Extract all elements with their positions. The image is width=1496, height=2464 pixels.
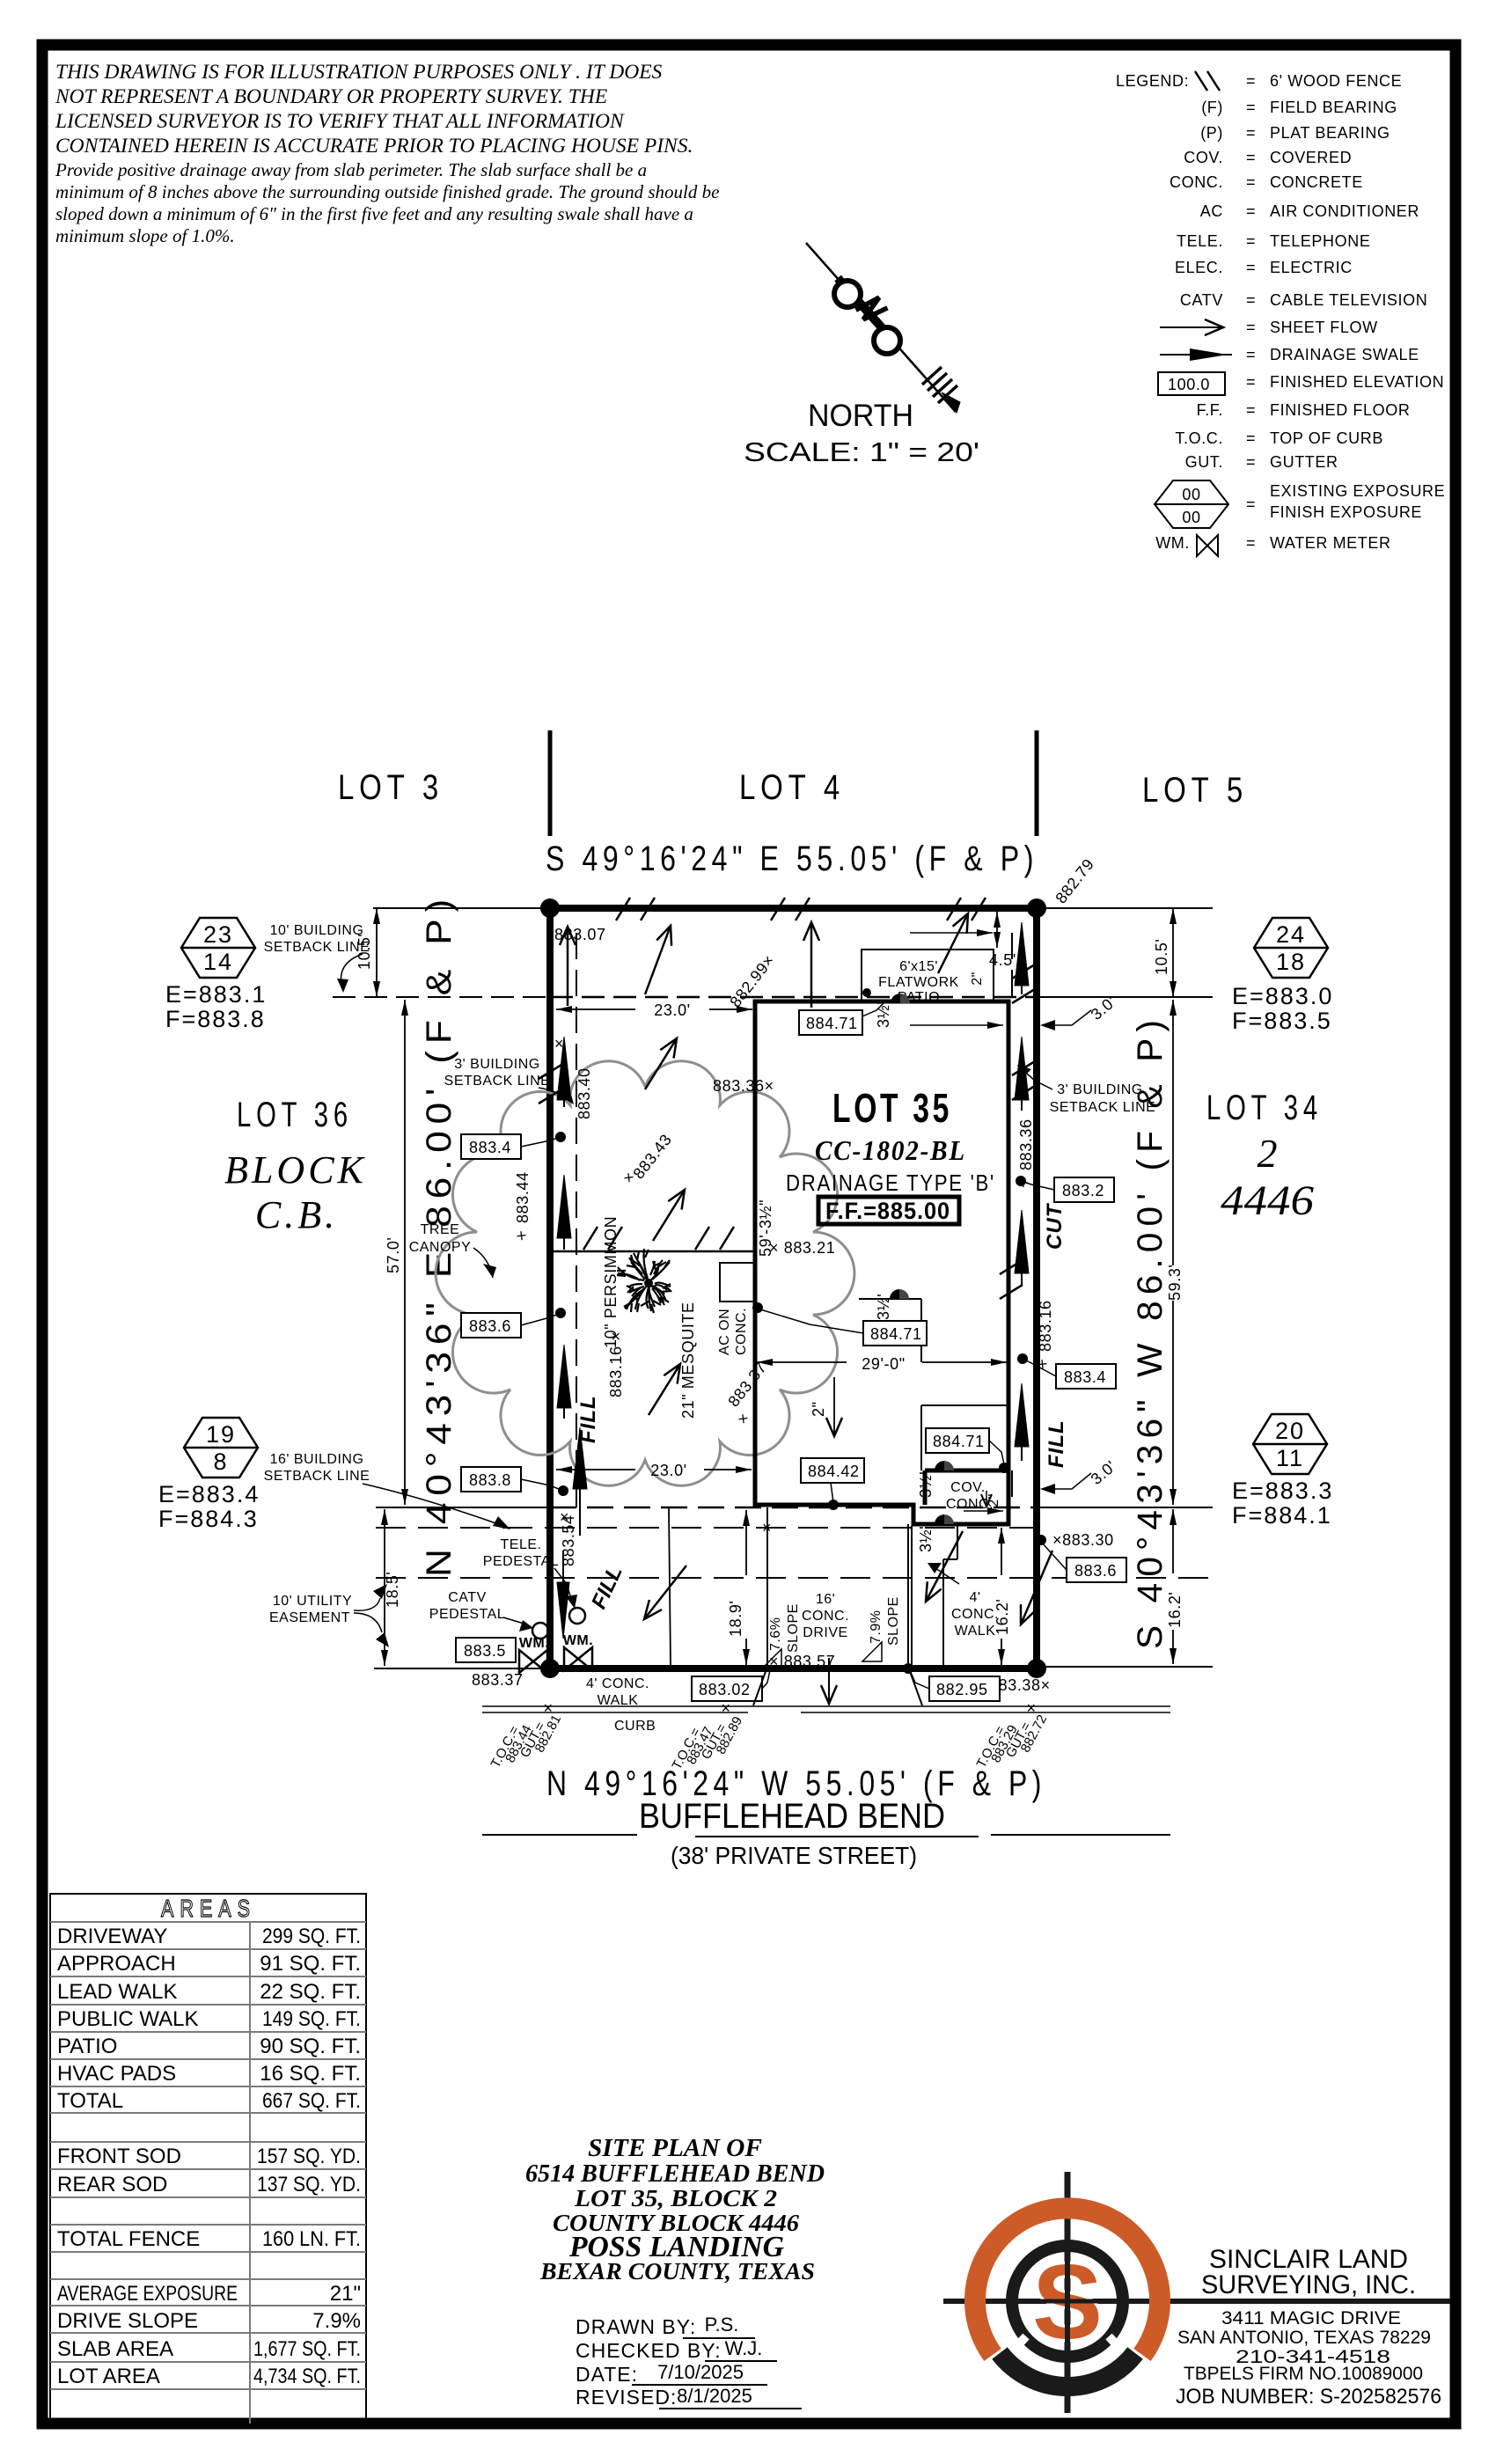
svg-text:E=883.3: E=883.3 — [1232, 1478, 1333, 1504]
svg-text:6514 BUFFLEHEAD BEND: 6514 BUFFLEHEAD BEND — [525, 2160, 825, 2188]
svg-text:CONC.: CONC. — [734, 1308, 749, 1355]
svg-text:COV.: COV. — [1184, 149, 1223, 166]
svg-text:LEAD WALK: LEAD WALK — [57, 1980, 178, 2004]
svg-text:F.F.=885.00: F.F.=885.00 — [825, 1198, 950, 1224]
svg-text:(F): (F) — [1201, 99, 1223, 116]
svg-text:6' WOOD FENCE: 6' WOOD FENCE — [1270, 72, 1402, 90]
svg-text:=: = — [1246, 346, 1256, 363]
svg-text:JOB NUMBER: S-202582576: JOB NUMBER: S-202582576 — [1176, 2385, 1441, 2409]
svg-text:CONC.: CONC. — [1170, 173, 1223, 191]
svg-text:11: 11 — [1276, 1445, 1304, 1471]
svg-text:23.0': 23.0' — [654, 1001, 690, 1019]
svg-text:CONTAINED HEREIN IS ACCURATE P: CONTAINED HEREIN IS ACCURATE PRIOR TO PL… — [55, 135, 693, 158]
svg-text:SLOPE: SLOPE — [886, 1596, 901, 1646]
svg-text:× 883.57: × 883.57 — [769, 1653, 835, 1670]
svg-text:TOTAL: TOTAL — [57, 2089, 123, 2113]
svg-text:10' UTILITY: 10' UTILITY — [273, 1594, 352, 1609]
svg-text:PATIO: PATIO — [57, 2035, 117, 2058]
svg-text:883.2: 883.2 — [1062, 1182, 1104, 1199]
svg-text:ELEC.: ELEC. — [1175, 259, 1223, 276]
svg-text:minimum of 8 inches above the: minimum of 8 inches above the surroundin… — [55, 181, 719, 202]
svg-text:18.9': 18.9' — [727, 1601, 744, 1637]
svg-text:WM.: WM. — [1155, 534, 1190, 552]
svg-text:3' BUILDING: 3' BUILDING — [1057, 1082, 1142, 1097]
svg-text:CATV: CATV — [448, 1590, 486, 1605]
svg-text:883.8: 883.8 — [469, 1471, 511, 1489]
svg-text:8: 8 — [213, 1448, 228, 1475]
svg-text:299 SQ. FT.: 299 SQ. FT. — [262, 1925, 361, 1948]
svg-text:×: × — [560, 1508, 569, 1526]
svg-text:16' BUILDING: 16' BUILDING — [270, 1452, 364, 1467]
svg-text:00: 00 — [1182, 486, 1200, 503]
svg-text:BEXAR COUNTY, TEXAS: BEXAR COUNTY, TEXAS — [539, 2258, 815, 2284]
svg-text:(P): (P) — [1200, 124, 1223, 142]
svg-text:883.02: 883.02 — [699, 1681, 751, 1698]
svg-text:DATE:: DATE: — [576, 2363, 638, 2386]
svg-text:20: 20 — [1275, 1418, 1305, 1444]
svg-text:6'x15': 6'x15' — [899, 959, 938, 974]
svg-text:SETBACK LINE: SETBACK LINE — [264, 940, 370, 955]
svg-text:TOTAL FENCE: TOTAL FENCE — [57, 2227, 200, 2251]
svg-text:TREE: TREE — [421, 1222, 460, 1237]
svg-text:2": 2" — [810, 1401, 827, 1417]
svg-text:884.71: 884.71 — [806, 1015, 858, 1032]
svg-text:=: = — [1246, 319, 1256, 336]
svg-text:4' CONC.: 4' CONC. — [586, 1676, 649, 1691]
svg-text:3½': 3½' — [875, 1001, 892, 1028]
svg-text:LOT 3: LOT 3 — [338, 768, 444, 807]
svg-text:=: = — [1246, 232, 1256, 250]
svg-text:883.6: 883.6 — [1074, 1562, 1117, 1580]
svg-text:10' BUILDING: 10' BUILDING — [270, 923, 364, 938]
svg-text:883.37: 883.37 — [472, 1671, 524, 1689]
svg-text:SETBACK LINE: SETBACK LINE — [264, 1469, 370, 1484]
svg-text:LOT 35, BLOCK 2: LOT 35, BLOCK 2 — [574, 2185, 777, 2211]
svg-text:137 SQ. YD.: 137 SQ. YD. — [257, 2173, 361, 2196]
svg-text:18.5': 18.5' — [384, 1572, 401, 1608]
svg-text:SLOPE: SLOPE — [786, 1603, 801, 1653]
svg-text:23: 23 — [203, 921, 233, 948]
svg-text:SETBACK LINE: SETBACK LINE — [444, 1074, 551, 1089]
svg-text:883.07: 883.07 — [554, 926, 606, 943]
svg-text:1,677 SQ. FT.: 1,677 SQ. FT. — [253, 2337, 361, 2361]
svg-text:CANOPY: CANOPY — [409, 1240, 472, 1255]
svg-text:APPROACH: APPROACH — [57, 1952, 176, 1976]
svg-text:7/10/2025: 7/10/2025 — [657, 2361, 744, 2383]
svg-text:3½': 3½' — [917, 1526, 935, 1552]
svg-text:2": 2" — [986, 1493, 1001, 1507]
svg-text:14: 14 — [203, 949, 233, 975]
svg-text:DRAINAGE TYPE 'B': DRAINAGE TYPE 'B' — [786, 1170, 995, 1196]
svg-text:=: = — [1246, 291, 1256, 309]
svg-text:LICENSED SURVEYOR IS TO VERIFY: LICENSED SURVEYOR IS TO VERIFY THAT ALL … — [55, 110, 625, 133]
svg-text:90 SQ. FT.: 90 SQ. FT. — [260, 2035, 361, 2058]
svg-text:3½': 3½' — [917, 1471, 935, 1498]
svg-text:16 SQ. FT.: 16 SQ. FT. — [260, 2062, 361, 2086]
svg-text:SCALE: 1" = 20': SCALE: 1" = 20' — [744, 436, 979, 467]
svg-text:19: 19 — [206, 1421, 236, 1448]
svg-text:21": 21" — [330, 2282, 361, 2306]
svg-text:LOT AREA: LOT AREA — [57, 2365, 160, 2388]
svg-text:SAN ANTONIO, TEXAS 78229: SAN ANTONIO, TEXAS 78229 — [1177, 2328, 1431, 2348]
svg-text:THIS DRAWING IS FOR ILLUSTRATI: THIS DRAWING IS FOR ILLUSTRATION PURPOSE… — [55, 61, 663, 84]
svg-text:TELE.: TELE. — [501, 1537, 542, 1552]
svg-text:SURVEYING, INC.: SURVEYING, INC. — [1201, 2270, 1416, 2299]
svg-text:FILL: FILL — [1045, 1419, 1068, 1468]
svg-text:21" MESQUITE: 21" MESQUITE — [679, 1302, 697, 1419]
svg-text:882.95: 882.95 — [936, 1681, 988, 1698]
svg-text:AIR CONDITIONER: AIR CONDITIONER — [1270, 202, 1419, 220]
svg-text:PLAT BEARING: PLAT BEARING — [1270, 124, 1390, 142]
svg-text:WM.: WM. — [519, 1636, 549, 1651]
svg-text:SLAB AREA: SLAB AREA — [57, 2337, 173, 2361]
svg-text:PUBLIC WALK: PUBLIC WALK — [57, 2007, 199, 2031]
svg-text:4.5': 4.5' — [989, 951, 1016, 969]
svg-text:2": 2" — [970, 972, 985, 986]
svg-text:ELECTRIC: ELECTRIC — [1270, 259, 1353, 276]
svg-text:=: = — [1246, 373, 1256, 391]
svg-text:GUTTER: GUTTER — [1270, 453, 1338, 471]
svg-text:WATER METER: WATER METER — [1270, 534, 1391, 552]
svg-text:CURB: CURB — [614, 1719, 656, 1734]
svg-text:CONC.: CONC. — [951, 1607, 999, 1622]
svg-text:HVAC PADS: HVAC PADS — [57, 2062, 176, 2086]
svg-text:884.71: 884.71 — [870, 1325, 922, 1343]
svg-text:=: = — [1246, 429, 1256, 447]
svg-text:FRONT SOD: FRONT SOD — [57, 2145, 181, 2168]
svg-text:REVISED:: REVISED: — [576, 2386, 677, 2409]
svg-text:884.71: 884.71 — [933, 1433, 985, 1450]
svg-text:3' BUILDING: 3' BUILDING — [454, 1057, 539, 1072]
svg-text:883.44: 883.44 — [514, 1171, 532, 1223]
svg-text:=: = — [1246, 401, 1256, 419]
svg-text:C.B.: C.B. — [255, 1193, 338, 1236]
svg-text:T.O.C.: T.O.C. — [1175, 429, 1223, 447]
svg-text:minimum slope of 1.0%.: minimum slope of 1.0%. — [55, 225, 235, 246]
svg-text:3½': 3½' — [875, 1294, 892, 1320]
svg-text:AC ON: AC ON — [717, 1309, 732, 1355]
svg-text:SHEET FLOW: SHEET FLOW — [1270, 319, 1378, 336]
svg-text:667 SQ. FT.: 667 SQ. FT. — [262, 2089, 361, 2113]
svg-text:4': 4' — [970, 1590, 981, 1605]
svg-text:CONCRETE: CONCRETE — [1270, 173, 1363, 191]
svg-text:×: × — [721, 1699, 730, 1717]
svg-text:EXISTING EXPOSURE: EXISTING EXPOSURE — [1270, 482, 1445, 500]
svg-text:SETBACK LINE: SETBACK LINE — [1050, 1100, 1156, 1115]
svg-text:AC: AC — [1200, 202, 1223, 220]
svg-text:883.5: 883.5 — [464, 1642, 506, 1660]
svg-text:LEGEND:: LEGEND: — [1116, 72, 1189, 90]
svg-text:91 SQ. FT.: 91 SQ. FT. — [260, 1952, 361, 1976]
svg-text:Provide positive drainage away: Provide positive drainage away from slab… — [55, 159, 647, 180]
svg-text:=: = — [1246, 202, 1256, 220]
svg-text:29'-0": 29'-0" — [862, 1355, 905, 1373]
svg-text:E=883.0: E=883.0 — [1232, 983, 1333, 1009]
svg-text:F=883.8: F=883.8 — [165, 1006, 266, 1032]
svg-text:E=883.1: E=883.1 — [165, 981, 267, 1008]
svg-text:LOT 5: LOT 5 — [1142, 771, 1248, 810]
svg-text:TBPELS FIRM NO.10089000: TBPELS FIRM NO.10089000 — [1184, 2364, 1423, 2384]
svg-text:160 LN. FT.: 160 LN. FT. — [262, 2227, 361, 2251]
svg-text:E=883.4: E=883.4 — [158, 1481, 260, 1507]
svg-text:883.6: 883.6 — [469, 1317, 511, 1335]
svg-text:FIELD BEARING: FIELD BEARING — [1270, 99, 1397, 116]
svg-text:P.S.: P.S. — [705, 2314, 739, 2336]
svg-text:PEDESTAL: PEDESTAL — [429, 1607, 505, 1622]
svg-text:CABLE TELEVISION: CABLE TELEVISION — [1270, 291, 1427, 309]
svg-text:10.5': 10.5' — [1153, 939, 1170, 975]
svg-text:=: = — [1246, 534, 1256, 552]
svg-text:FLATWORK: FLATWORK — [878, 975, 959, 990]
svg-text:FINISHED FLOOR: FINISHED FLOOR — [1270, 401, 1410, 419]
svg-text:WALK: WALK — [955, 1624, 996, 1639]
svg-text:CUT: CUT — [1043, 1202, 1067, 1250]
svg-text:AREAS: AREAS — [161, 1895, 256, 1922]
svg-text:×883.30: ×883.30 — [1052, 1531, 1114, 1549]
svg-text:REAR SOD: REAR SOD — [57, 2173, 167, 2196]
svg-text:CC-1802-BL: CC-1802-BL — [815, 1134, 966, 1166]
svg-text:4,734 SQ. FT.: 4,734 SQ. FT. — [253, 2365, 361, 2388]
svg-text:WM.: WM. — [563, 1633, 593, 1648]
svg-text:=: = — [1246, 99, 1256, 116]
svg-text:DRIVE SLOPE: DRIVE SLOPE — [57, 2309, 198, 2333]
svg-text:GUT.: GUT. — [1185, 453, 1223, 471]
svg-text:7.9%: 7.9% — [312, 2309, 361, 2333]
svg-text:BUFFLEHEAD BEND: BUFFLEHEAD BEND — [639, 1797, 945, 1836]
svg-text:× 883.21: × 883.21 — [769, 1239, 835, 1257]
svg-text:883.40: 883.40 — [576, 1067, 593, 1119]
svg-text:7.9%: 7.9% — [869, 1610, 884, 1644]
svg-text:8/1/2025: 8/1/2025 — [677, 2385, 752, 2407]
svg-text:2: 2 — [1258, 1131, 1278, 1176]
svg-text:883.16: 883.16 — [1037, 1300, 1054, 1352]
svg-text:DRAWN BY:: DRAWN BY: — [576, 2315, 696, 2338]
svg-text:=: = — [1246, 495, 1256, 513]
svg-text:23.0': 23.0' — [650, 1462, 686, 1479]
svg-text:883.16 ×: 883.16 × — [607, 1331, 625, 1397]
svg-text:LOT 35: LOT 35 — [832, 1085, 952, 1131]
svg-text:884.42: 884.42 — [808, 1463, 860, 1480]
svg-text:CONC.: CONC. — [802, 1609, 849, 1624]
svg-text:F=883.5: F=883.5 — [1232, 1008, 1332, 1034]
svg-text:sloped down a minimum of 6" in: sloped down a minimum of 6" in the first… — [55, 203, 693, 224]
svg-text:NOT REPRESENT A BOUNDARY OR PR: NOT REPRESENT A BOUNDARY OR PROPERTY SUR… — [55, 85, 607, 108]
svg-text:AVERAGE EXPOSURE: AVERAGE EXPOSURE — [57, 2282, 238, 2306]
svg-text:CATV: CATV — [1180, 291, 1223, 309]
svg-text:16': 16' — [816, 1592, 835, 1607]
svg-text:F.F.: F.F. — [1197, 401, 1223, 419]
svg-text:18: 18 — [1276, 949, 1306, 975]
svg-text:CHECKED BY:: CHECKED BY: — [576, 2339, 722, 2362]
svg-text:PEDESTAL: PEDESTAL — [483, 1554, 559, 1569]
svg-text:LOT 36: LOT 36 — [237, 1096, 353, 1134]
svg-text:LOT 4: LOT 4 — [739, 768, 845, 807]
svg-text:=: = — [1246, 72, 1256, 90]
svg-text:F=884.1: F=884.1 — [1232, 1502, 1332, 1529]
svg-text:TELEPHONE: TELEPHONE — [1270, 232, 1370, 250]
svg-text:W.J.: W.J. — [725, 2337, 763, 2359]
svg-text:NORTH: NORTH — [808, 399, 913, 433]
svg-text:00: 00 — [1182, 509, 1200, 526]
svg-text:TELE.: TELE. — [1177, 232, 1223, 250]
svg-text:DRIVE: DRIVE — [803, 1625, 847, 1640]
svg-text:F=884.3: F=884.3 — [158, 1506, 259, 1532]
svg-text:3411 MAGIC DRIVE: 3411 MAGIC DRIVE — [1221, 2308, 1401, 2328]
svg-text:24: 24 — [1276, 921, 1306, 948]
svg-text:7.6%: 7.6% — [768, 1617, 783, 1651]
svg-text:COVERED: COVERED — [1270, 149, 1352, 166]
svg-text:COV.: COV. — [950, 1480, 986, 1495]
svg-text:DRAINAGE SWALE: DRAINAGE SWALE — [1270, 346, 1419, 363]
svg-text:FINISHED ELEVATION: FINISHED ELEVATION — [1270, 373, 1444, 391]
svg-text:883.36: 883.36 — [1017, 1118, 1035, 1170]
svg-text:4446: 4446 — [1221, 1177, 1314, 1224]
svg-text:57.0': 57.0' — [385, 1237, 402, 1273]
svg-text:FILL: FILL — [576, 1395, 600, 1443]
svg-text:22 SQ. FT.: 22 SQ. FT. — [260, 1980, 361, 2004]
svg-text:149 SQ. FT.: 149 SQ. FT. — [262, 2007, 361, 2031]
svg-text:=: = — [1246, 453, 1256, 471]
svg-text:=: = — [1246, 259, 1256, 276]
svg-text:SITE PLAN OF: SITE PLAN OF — [588, 2135, 762, 2162]
svg-text:(38' PRIVATE STREET): (38' PRIVATE STREET) — [671, 1842, 917, 1869]
svg-text:×: × — [1026, 1699, 1036, 1717]
svg-text:S 49°16'24" E 55.05' (F & P): S 49°16'24" E 55.05' (F & P) — [546, 840, 1038, 878]
svg-text:LOT 34: LOT 34 — [1206, 1089, 1323, 1127]
svg-text:100.0: 100.0 — [1168, 376, 1210, 393]
svg-text:883.4: 883.4 — [469, 1139, 511, 1156]
svg-text:TOP OF CURB: TOP OF CURB — [1270, 429, 1383, 447]
svg-text:=: = — [1246, 173, 1256, 191]
svg-text:=: = — [1246, 124, 1256, 142]
svg-text:883.36×: 883.36× — [713, 1077, 774, 1095]
svg-text:EASEMENT: EASEMENT — [269, 1610, 350, 1625]
svg-text:157 SQ. YD.: 157 SQ. YD. — [257, 2145, 361, 2168]
svg-text:BLOCK: BLOCK — [224, 1148, 367, 1192]
svg-text:FINISH EXPOSURE: FINISH EXPOSURE — [1270, 503, 1422, 521]
svg-text:=: = — [1246, 149, 1256, 166]
svg-text:DRIVEWAY: DRIVEWAY — [57, 1925, 167, 1948]
svg-text:883.4: 883.4 — [1064, 1368, 1106, 1386]
